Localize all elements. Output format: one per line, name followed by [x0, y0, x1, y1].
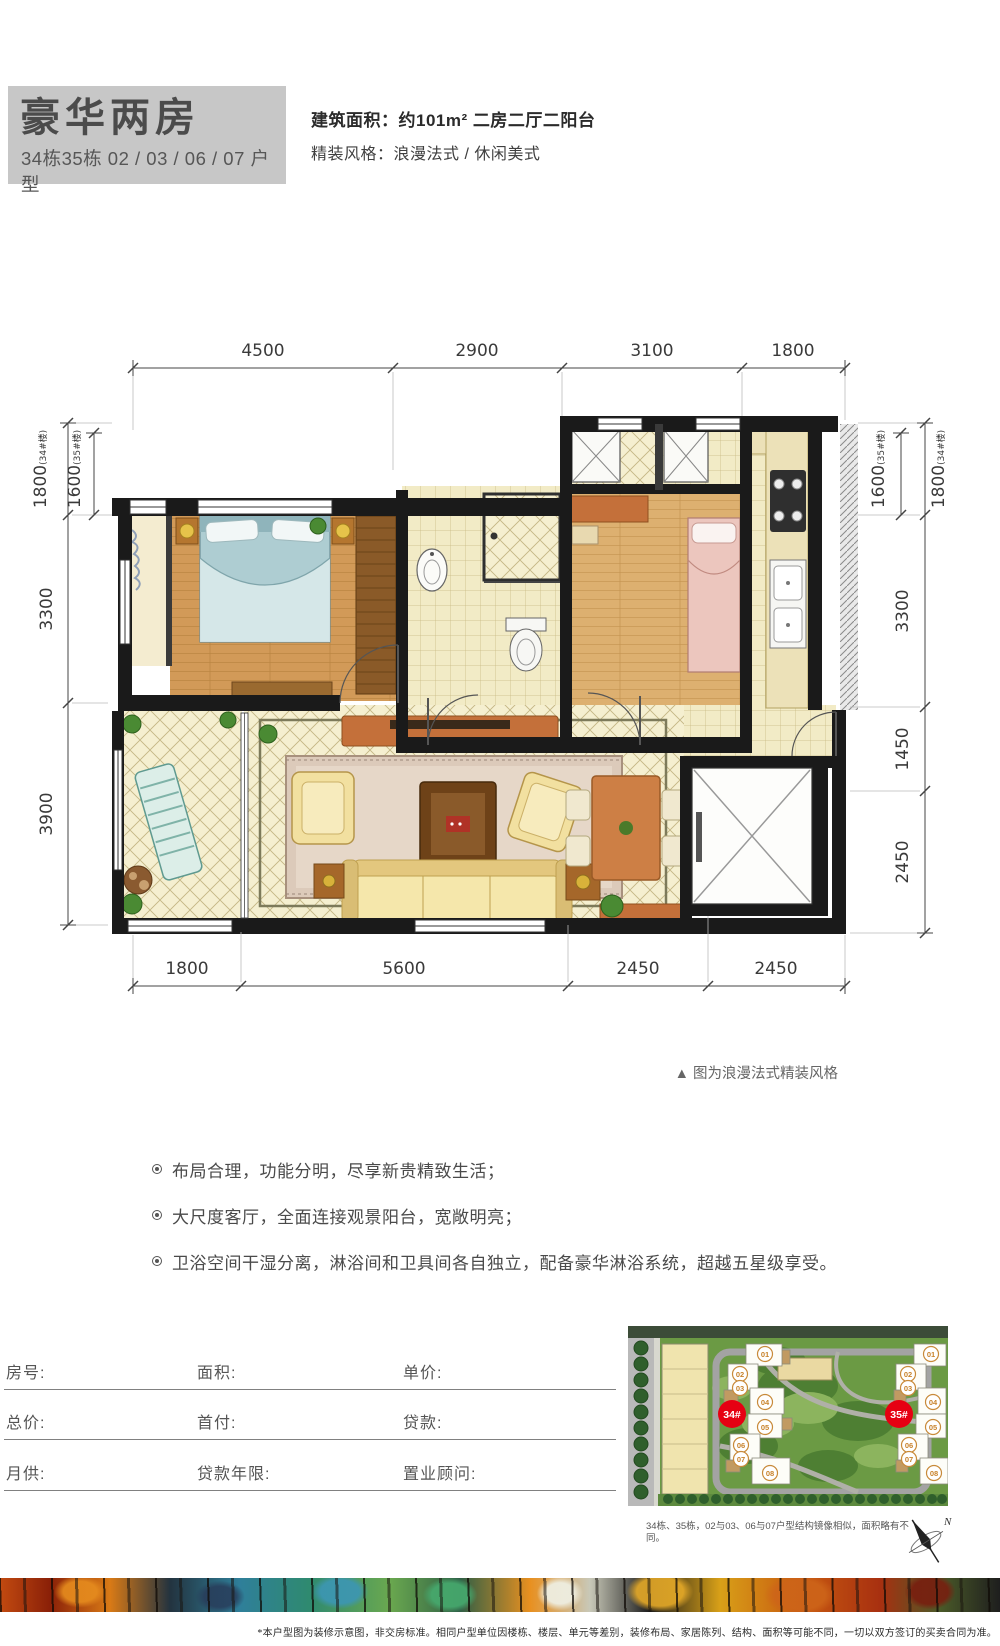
feature-item: 卫浴空间干湿分离，淋浴间和卫具间各自独立，配备豪华淋浴系统，超越五星级享受。	[152, 1238, 872, 1284]
unit-label: 07	[737, 1455, 745, 1464]
field-unit-price: 单价:	[403, 1359, 442, 1383]
field-room-number: 房号:	[6, 1359, 45, 1383]
wall-right-outer-lower	[832, 710, 846, 934]
elevator-shaft	[692, 768, 812, 904]
coffee-table-icon	[420, 782, 496, 866]
unit-label: 01	[761, 1350, 769, 1359]
window-balcony-bottom	[128, 920, 232, 932]
unit-label: 07	[905, 1455, 913, 1464]
field-area: 面积:	[197, 1359, 236, 1383]
feature-text: 卫浴空间干湿分离，淋浴间和卫具间各自独立，配备豪华淋浴系统，超越五星级享受。	[172, 1249, 837, 1274]
site-plan-map: 01 02 03 04 05 06 07 08 01 02 03 04 05 0…	[628, 1326, 948, 1506]
form-row-2: 总价: 首付: 贷款:	[4, 1410, 616, 1440]
decorative-art-band	[0, 1578, 1000, 1612]
brochure-page: { "header": { "title": "豪华两房", "subtitle…	[0, 0, 1000, 1646]
sink-icon	[417, 549, 447, 591]
feature-list: 布局合理，功能分明，尽享新贵精致生活； 大尺度客厅，全面连接观景阳台，宽敞明亮；…	[152, 1146, 872, 1284]
compass-n-label: N	[943, 1516, 952, 1528]
unit-label: 02	[736, 1370, 744, 1379]
unit-label: 05	[929, 1423, 937, 1432]
party-wall-hatch	[840, 424, 858, 710]
site-plan-caption: 34栋、35栋，02与03、06与07户型结构镜像相似，面积略有不同。	[646, 1521, 924, 1546]
unit-label: 08	[766, 1469, 774, 1478]
balcony-glass-slider	[241, 713, 248, 918]
side-lamp-left-icon	[323, 875, 335, 887]
wall-elevator-bottom	[680, 904, 828, 916]
wall-elevator-right	[812, 756, 828, 916]
feature-text: 布局合理，功能分明，尽享新贵精致生活；	[172, 1157, 505, 1182]
building-34-badge: 34#	[718, 1400, 746, 1428]
area-line: 建筑面积：约101m² 二房二厅二阳台	[311, 106, 595, 131]
side-lamp-right-icon	[576, 875, 590, 889]
dim-bottom-2: 5600	[382, 959, 425, 979]
wall-elevator-left	[680, 756, 692, 918]
unit-label: 02	[904, 1370, 912, 1379]
dim-bottom-3: 2450	[616, 959, 659, 979]
bedroom2-bed-icon	[688, 518, 740, 672]
site-bottom-hedge	[658, 1494, 948, 1506]
wall-bath-bottom	[398, 737, 752, 753]
dim-right-2: 1800(34#楼)	[929, 430, 949, 508]
site-long-building	[662, 1344, 708, 1494]
stove-icon	[770, 470, 806, 532]
unit-label: 04	[929, 1398, 938, 1407]
bullet-icon	[152, 1256, 162, 1266]
wall-utility-divider	[655, 424, 663, 490]
wall-laundry-divider	[166, 516, 172, 666]
pantry-cabinet-icon	[664, 430, 708, 482]
lamp-right-icon	[336, 524, 350, 538]
sofa-icon	[342, 860, 572, 922]
balcony-table-icon	[124, 866, 152, 894]
field-total-price: 总价:	[6, 1409, 45, 1433]
master-bed-icon	[200, 516, 330, 642]
unit-label: 04	[761, 1398, 770, 1407]
site-top-band	[628, 1326, 948, 1338]
unit-label: 05	[761, 1423, 769, 1432]
dresser-icon	[232, 682, 332, 697]
field-down-payment: 首付:	[197, 1409, 236, 1433]
kitchen-sink-icon	[770, 560, 806, 648]
unit-label: 03	[736, 1384, 744, 1393]
dim-left-3: 3300	[37, 587, 57, 630]
dim-left-4: 3900	[37, 792, 57, 835]
feature-text: 大尺度客厅，全面连接观景阳台，宽敞明亮；	[172, 1203, 522, 1228]
site-left-road	[628, 1338, 660, 1506]
form-row-1: 房号: 面积: 单价:	[4, 1360, 616, 1390]
wall-kitchen-left	[740, 424, 752, 753]
wardrobe-icon	[356, 516, 396, 694]
dim-right-5: 2450	[893, 840, 913, 883]
style-line: 精装风格：浪漫法式 / 休闲美式	[311, 140, 540, 164]
svg-text:35#: 35#	[890, 1409, 908, 1421]
bullet-icon	[152, 1164, 162, 1174]
armchair-icon	[292, 772, 354, 844]
field-loan: 贷款:	[403, 1409, 442, 1433]
dim-top-3: 3100	[630, 341, 673, 361]
unit-label: 03	[904, 1384, 912, 1393]
dim-top-2: 2900	[455, 341, 498, 361]
dim-top-1: 4500	[241, 341, 284, 361]
compass-icon: N	[898, 1512, 956, 1568]
dim-top-4: 1800	[771, 341, 814, 361]
window-living-slider	[415, 920, 545, 932]
svg-text:34#: 34#	[723, 1409, 741, 1421]
window-left-wall	[120, 560, 130, 644]
title-box: 豪华两房 34栋35栋 02 / 03 / 06 / 07 户型	[8, 86, 286, 184]
field-consultant: 置业顾问:	[403, 1460, 476, 1484]
window-pantry-top	[696, 418, 740, 430]
form-row-3: 月供: 贷款年限: 置业顾问:	[4, 1461, 616, 1491]
wall-bath-right	[560, 424, 572, 753]
window-utility-top	[598, 418, 642, 430]
unit-subtitle: 34栋35栋 02 / 03 / 06 / 07 户型	[21, 145, 286, 197]
floor-plan: 4500 2900 3100 1800 1800 5600 2450 2450 …	[0, 320, 1000, 1060]
plan-style-caption: ▲ 图为浪漫法式精装风格	[600, 1062, 838, 1083]
unit-label: 08	[930, 1469, 938, 1478]
dim-left-1: 1800(34#楼)	[31, 430, 51, 508]
bullet-icon	[152, 1210, 162, 1220]
window-balcony-left-wall	[114, 750, 122, 870]
dim-right-3: 3300	[893, 589, 913, 632]
wall-bath-left	[396, 490, 408, 753]
window-laundry	[130, 500, 166, 514]
unit-label: 06	[737, 1441, 745, 1450]
washer-icon	[572, 430, 620, 482]
building-35-badge: 35#	[885, 1400, 913, 1428]
wall-kitchen-right	[808, 416, 822, 710]
dim-right-4: 1450	[893, 727, 913, 770]
unit-label: 06	[905, 1441, 913, 1450]
field-loan-term: 贷款年限:	[197, 1460, 270, 1484]
wall-top-main	[112, 498, 568, 516]
desk-chair	[572, 526, 598, 544]
feature-item: 布局合理，功能分明，尽享新贵精致生活；	[152, 1146, 872, 1192]
wall-bedroom-living	[118, 695, 340, 711]
dim-right-1: 1600(35#楼)	[869, 430, 889, 508]
dim-bottom-4: 2450	[754, 959, 797, 979]
window-master-bedroom	[198, 500, 332, 514]
unit-label: 01	[927, 1350, 935, 1359]
dim-bottom-1: 1800	[165, 959, 208, 979]
disclaimer-text: *本户型图为装修示意图，非交房标准。相同户型单位因楼栋、楼层、单元等差别，装修布…	[0, 1624, 997, 1639]
lamp-left-icon	[180, 524, 194, 538]
desk-icon	[570, 496, 648, 522]
feature-item: 大尺度客厅，全面连接观景阳台，宽敞明亮；	[152, 1192, 872, 1238]
page-title: 豪华两房	[20, 96, 286, 140]
field-monthly-payment: 月供:	[6, 1460, 45, 1484]
